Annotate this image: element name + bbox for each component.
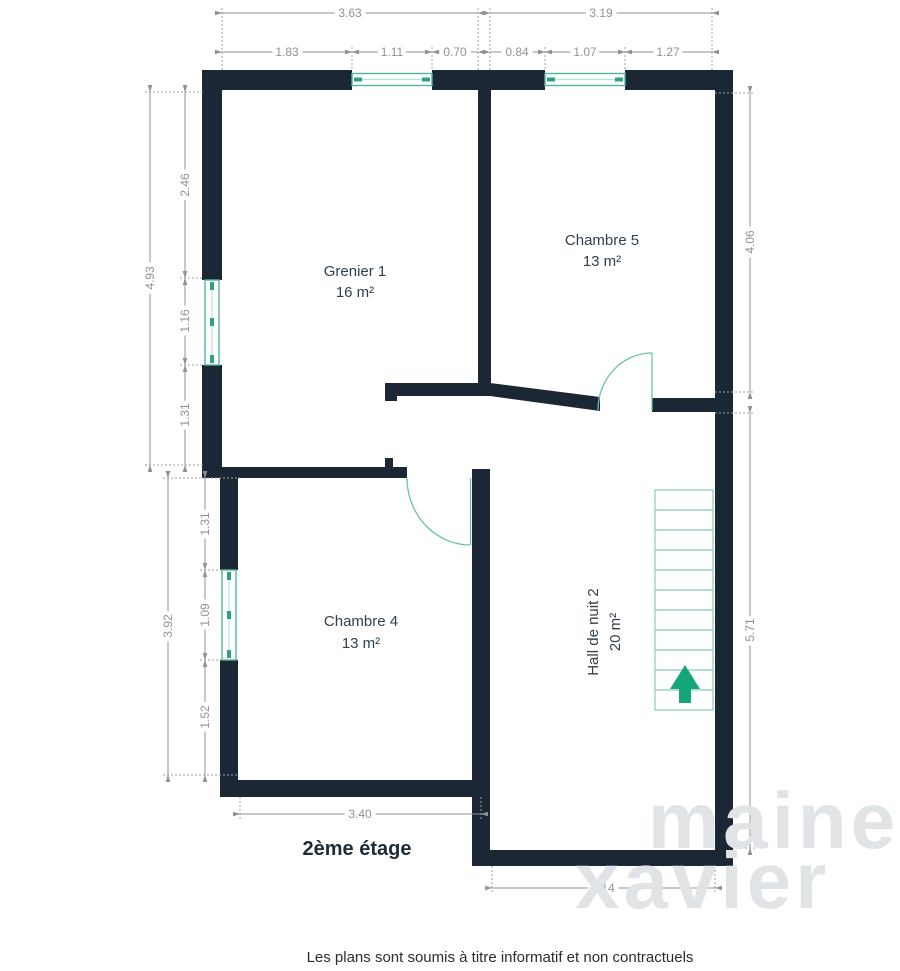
- dim-label: 1.16: [178, 309, 192, 333]
- dim-top-grenier-b: 0.70: [432, 45, 478, 59]
- windows: [205, 74, 625, 661]
- dim-label: 3.63: [338, 6, 362, 20]
- watermark: maine xavier: [575, 776, 899, 925]
- dim-left-grenier-a: 2.46: [178, 92, 192, 278]
- window-chambre5-top: [545, 74, 625, 86]
- dim-top-grenier-a: 1.83: [222, 45, 352, 59]
- window-chambre4-left: [222, 570, 236, 660]
- dim-top-chambre5-window: 1.07: [545, 45, 625, 59]
- dim-top-total-grenier: 3.63: [222, 6, 478, 20]
- wall-left-lower-b: [220, 660, 238, 797]
- room-label-chambre4-name: Chambre 4: [324, 613, 398, 630]
- dim-label: 3.40: [348, 807, 372, 821]
- dim-label: 5.71: [743, 618, 757, 642]
- door-chambre4: [407, 478, 471, 545]
- room-label-hall-name: Hall de nuit 2: [585, 588, 602, 676]
- dim-label: 1.31: [198, 512, 212, 536]
- room-label-grenier1-area: 16 m²: [336, 284, 374, 301]
- dim-label: 3.92: [161, 614, 175, 638]
- watermark-line2: xavier: [575, 836, 830, 925]
- floorplan-page: 3.63 1.83 1.11 0.70 3.19 0.84 1.07 1.27: [0, 0, 900, 971]
- dim-label: 1.27: [656, 45, 680, 59]
- dim-label: 0.70: [443, 45, 467, 59]
- dim-left-chambre4-b: 1.52: [198, 660, 212, 775]
- dim-label: 1.83: [275, 45, 299, 59]
- dim-label: 3.19: [589, 6, 613, 20]
- window-grenier-top: [352, 74, 432, 86]
- staircase: [655, 490, 713, 710]
- dim-top-total-chambre5: 3.19: [490, 6, 712, 20]
- wall-left-upper-b: [202, 365, 222, 467]
- wall-right: [715, 70, 733, 866]
- floor-label: 2ème étage: [303, 838, 412, 860]
- floorplan-svg: 3.63 1.83 1.11 0.70 3.19 0.84 1.07 1.27: [0, 0, 900, 971]
- wall-chambre4-bottom: [220, 780, 490, 797]
- wall-left-upper-a: [202, 70, 222, 280]
- dim-left-grenier-window: 1.16: [178, 278, 192, 365]
- dim-top-grenier-window: 1.11: [352, 45, 432, 59]
- room-label-chambre5-area: 13 m²: [583, 253, 621, 270]
- room-label-chambre5-name: Chambre 5: [565, 232, 639, 249]
- disclaimer-text: Les plans sont soumis à titre informatif…: [307, 949, 694, 966]
- window-grenier-left: [205, 280, 219, 365]
- wall-chambre4-top: [202, 467, 407, 478]
- dim-label: 1.31: [178, 403, 192, 427]
- door-chambre5: [598, 353, 652, 410]
- wall-left-lower-a: [220, 478, 238, 570]
- room-label-hall-area: 20 m²: [607, 613, 624, 651]
- walls: [202, 70, 733, 866]
- dim-left-chambre4-window: 1.09: [198, 570, 212, 660]
- dim-bottom-chambre4: 3.40: [240, 807, 481, 821]
- dim-right-chambre5: 4.06: [743, 93, 757, 392]
- dim-top-chambre5-a: 0.84: [490, 45, 545, 59]
- dim-label: 2.46: [178, 173, 192, 197]
- wall-top-mid: [432, 70, 545, 90]
- dim-left-grenier-b: 1.31: [178, 365, 192, 465]
- room-label-grenier1-name: Grenier 1: [324, 263, 387, 280]
- doors: [407, 353, 652, 545]
- dim-label: 1.09: [198, 603, 212, 627]
- wall-chambre5-door-side: [652, 398, 715, 412]
- wall-mid-endcap: [385, 383, 397, 401]
- dim-label: 0.84: [505, 45, 529, 59]
- room-label-chambre4-area: 13 m²: [342, 635, 380, 652]
- dim-label: 1.11: [381, 45, 404, 59]
- wall-mid-diagonal: [490, 383, 600, 411]
- wall-mid-horizontal: [385, 383, 490, 396]
- dim-left-total-grenier: 4.93: [143, 92, 157, 465]
- dim-left-chambre4-a: 1.31: [198, 478, 212, 570]
- dim-label: 1.52: [198, 705, 212, 729]
- dim-label: 1.07: [573, 45, 597, 59]
- wall-grenier-chambre5: [478, 90, 491, 383]
- wall-chambre4-top-stub: [385, 458, 393, 467]
- dim-label: 4.06: [743, 230, 757, 254]
- dim-label: 4.93: [143, 266, 157, 290]
- wall-top-left: [202, 70, 352, 90]
- dim-left-total-chambre4: 3.92: [161, 478, 175, 775]
- dim-top-chambre5-b: 1.27: [625, 45, 712, 59]
